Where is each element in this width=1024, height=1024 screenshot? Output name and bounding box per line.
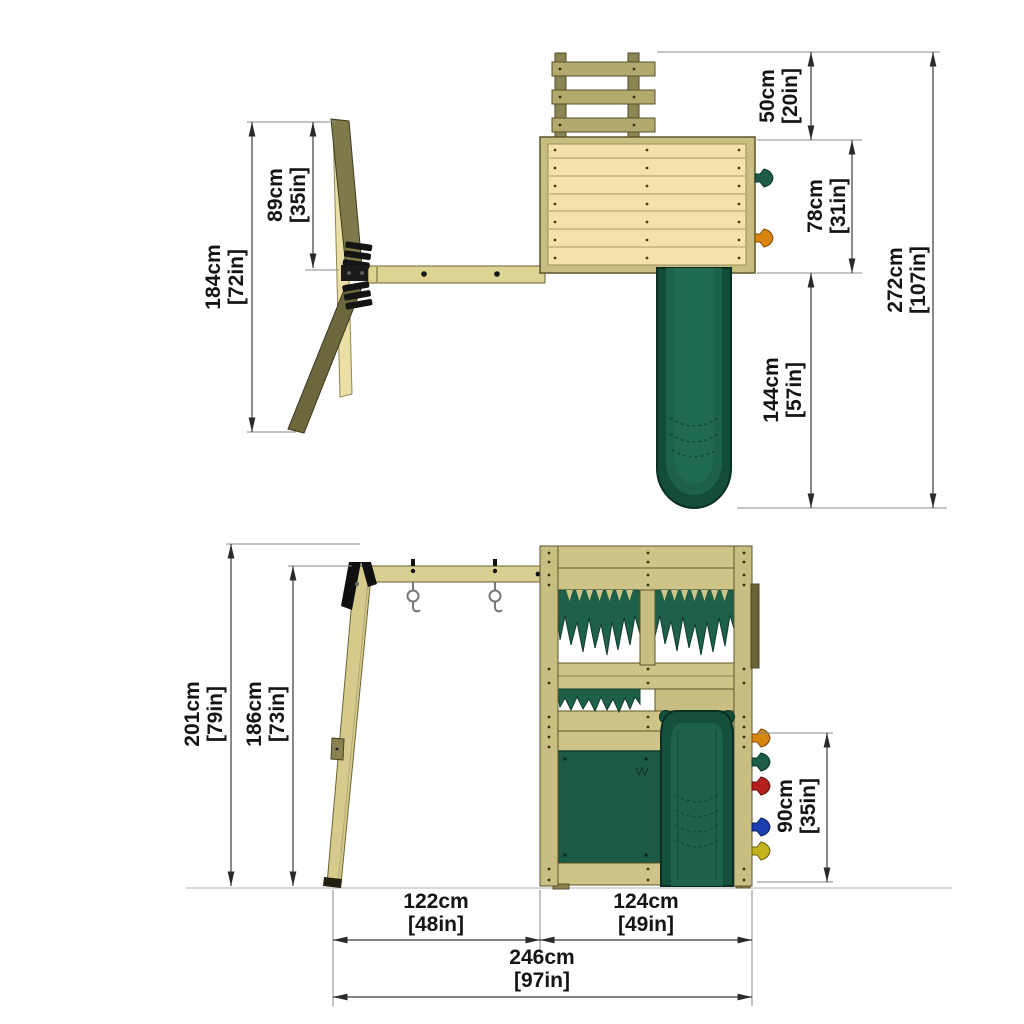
tower-right-post bbox=[734, 546, 752, 886]
platform-depth-cm: 78cm bbox=[804, 179, 827, 233]
ladder-depth-in: [20in] bbox=[779, 68, 802, 124]
swing-frame-top-view bbox=[288, 119, 373, 433]
platform-depth-in: [31in] bbox=[827, 178, 850, 234]
total-depth-in: [107in] bbox=[907, 246, 930, 314]
swing-beam-front-view bbox=[355, 559, 545, 582]
beam-height-in: [73in] bbox=[266, 686, 289, 742]
top-plank-1 bbox=[540, 546, 752, 568]
climbing-holds bbox=[752, 729, 770, 860]
playset-dimension-diagram: 184cm [72in] 89cm [35in] 50cm [20in] 78c… bbox=[0, 0, 1024, 1024]
swing-span-cm: 122cm bbox=[403, 890, 468, 913]
knob-green-top-view bbox=[755, 169, 773, 187]
slide-length-cm: 144cm bbox=[760, 357, 783, 422]
swing-beam-top-view bbox=[368, 266, 545, 283]
total-height-cm: 201cm bbox=[181, 681, 204, 746]
wall-height-in: [35in] bbox=[797, 778, 820, 834]
beam-height-cm: 186cm bbox=[243, 681, 266, 746]
dim-label-total-height: 201cm [79in] bbox=[181, 681, 227, 746]
total-width-in: [97in] bbox=[514, 969, 570, 992]
knob-orange-top-view bbox=[755, 229, 773, 247]
platform-top-view bbox=[540, 137, 773, 273]
dim-label-swing-span: 122cm [48in] bbox=[403, 890, 468, 936]
frame-depth-in: [72in] bbox=[225, 249, 248, 305]
dim-label-platform-depth: 78cm [31in] bbox=[804, 178, 850, 234]
ladder-depth-cm: 50cm bbox=[756, 69, 779, 123]
swing-span-in: [48in] bbox=[408, 913, 464, 936]
total-depth-cm: 272cm bbox=[884, 247, 907, 312]
slide-front-view bbox=[660, 711, 735, 887]
total-height-in: [79in] bbox=[204, 686, 227, 742]
climbing-hold-blue bbox=[752, 818, 770, 836]
climbing-hold-red bbox=[752, 777, 770, 795]
dim-label-frame-depth: 184cm [72in] bbox=[202, 244, 248, 309]
climbing-hold-yellow bbox=[752, 842, 770, 860]
top-view: 184cm [72in] 89cm [35in] 50cm [20in] 78c… bbox=[202, 52, 947, 508]
dim-label-slide-length: 144cm [57in] bbox=[760, 357, 806, 422]
swing-hanger-icon bbox=[408, 582, 421, 611]
swing-leg-front-view bbox=[323, 562, 377, 888]
top-plank-2 bbox=[540, 568, 752, 590]
tower-center-post bbox=[640, 590, 655, 665]
wall-height-cm: 90cm bbox=[774, 779, 797, 833]
dim-label-total-width: 246cm [97in] bbox=[509, 946, 574, 992]
swing-hanger-icon bbox=[490, 582, 503, 611]
slide-top-view bbox=[657, 268, 731, 508]
climbing-hold-green bbox=[752, 753, 770, 771]
diagram-canvas: 184cm [72in] 89cm [35in] 50cm [20in] 78c… bbox=[0, 0, 1024, 1024]
dim-label-ladder-depth: 50cm [20in] bbox=[756, 68, 802, 124]
dim-label-tower-span: 124cm [49in] bbox=[613, 890, 678, 936]
side-panel-edge bbox=[751, 584, 759, 668]
frame-depth-cm: 184cm bbox=[202, 244, 225, 309]
tower-span-in: [49in] bbox=[618, 913, 674, 936]
arm-span-in: [35in] bbox=[287, 167, 310, 223]
dim-label-beam-height: 186cm [73in] bbox=[243, 681, 289, 746]
dim-label-arm-span: 89cm [35in] bbox=[264, 167, 310, 223]
total-width-cm: 246cm bbox=[509, 946, 574, 969]
right-window-plank bbox=[655, 689, 735, 711]
tower-span-cm: 124cm bbox=[613, 890, 678, 913]
climbing-hold-orange bbox=[752, 729, 770, 747]
dim-label-wall-height: 90cm [35in] bbox=[774, 778, 820, 834]
dim-label-total-depth: 272cm [107in] bbox=[884, 246, 930, 314]
arm-span-cm: 89cm bbox=[264, 168, 287, 222]
slide-length-in: [57in] bbox=[783, 362, 806, 418]
front-view: 201cm [79in] 186cm [73in] 90cm [35in] 12… bbox=[181, 544, 952, 1006]
ladder-top-view bbox=[552, 53, 655, 140]
tower-front-view bbox=[540, 546, 770, 889]
